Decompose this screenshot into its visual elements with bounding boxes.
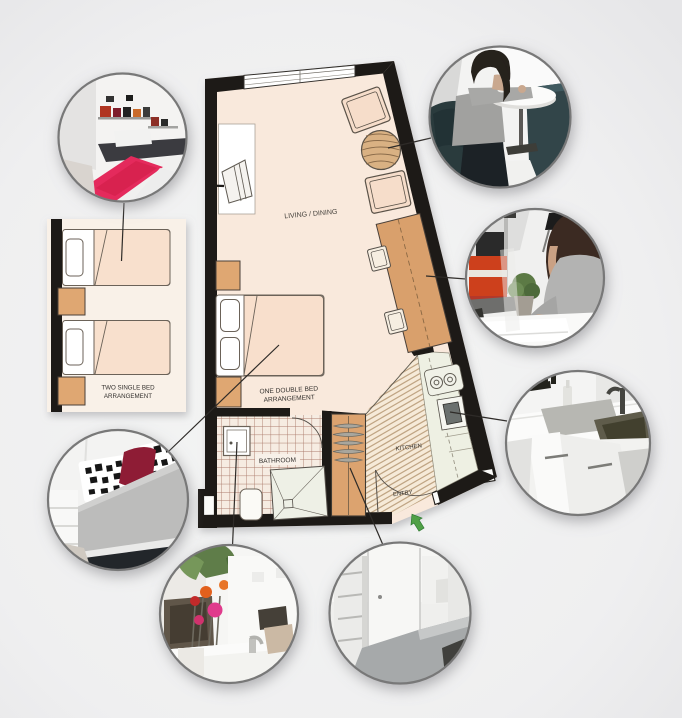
svg-text:TWO SINGLE BED: TWO SINGLE BED (101, 385, 155, 392)
svg-text:ARRANGEMENT: ARRANGEMENT (104, 393, 152, 400)
svg-text:BATHROOM: BATHROOM (259, 457, 296, 465)
